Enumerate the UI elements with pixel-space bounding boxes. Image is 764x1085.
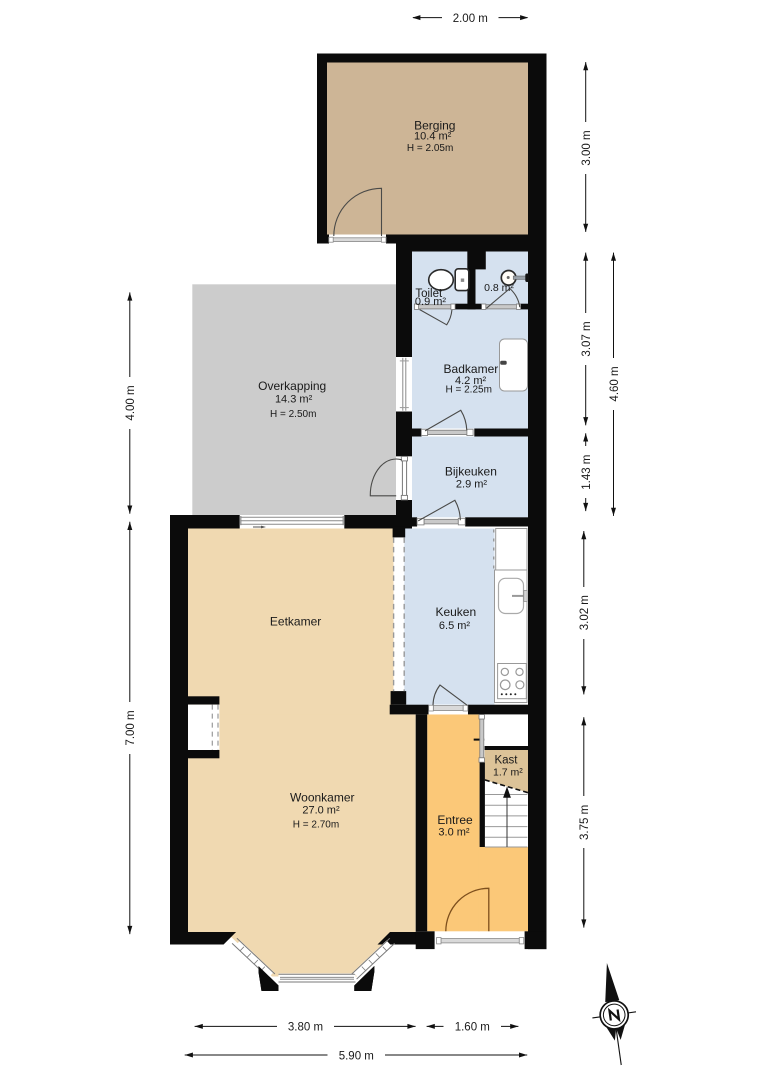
svg-text:Eetkamer: Eetkamer <box>270 615 321 629</box>
svg-text:3.07 m: 3.07 m <box>581 321 593 356</box>
svg-text:10.4 m²: 10.4 m² <box>414 130 452 142</box>
svg-text:6.5 m²: 6.5 m² <box>439 620 471 632</box>
svg-text:H = 2.70m: H = 2.70m <box>293 820 339 831</box>
svg-text:3.00 m: 3.00 m <box>581 130 593 165</box>
svg-text:Keuken: Keuken <box>435 605 476 619</box>
svg-text:Entree: Entree <box>437 813 473 827</box>
svg-text:27.0 m²: 27.0 m² <box>302 805 340 817</box>
svg-text:5.90 m: 5.90 m <box>339 1050 374 1062</box>
svg-text:Overkapping: Overkapping <box>258 379 326 393</box>
svg-text:0.8 m²: 0.8 m² <box>484 282 514 294</box>
svg-text:2.9 m²: 2.9 m² <box>456 479 488 491</box>
svg-text:3.75 m: 3.75 m <box>579 805 591 840</box>
svg-text:1.43 m: 1.43 m <box>581 455 593 490</box>
svg-text:H = 2.25m: H = 2.25m <box>445 384 491 395</box>
svg-text:Woonkamer: Woonkamer <box>290 791 354 805</box>
svg-text:4.60 m: 4.60 m <box>609 366 621 401</box>
svg-text:1.60 m: 1.60 m <box>455 1022 490 1034</box>
svg-text:14.3 m²: 14.3 m² <box>275 394 313 406</box>
svg-text:Bijkeuken: Bijkeuken <box>445 464 497 478</box>
svg-text:3.0 m²: 3.0 m² <box>438 827 470 839</box>
svg-text:0.9 m²: 0.9 m² <box>415 296 447 308</box>
svg-text:H = 2.50m: H = 2.50m <box>270 409 316 420</box>
svg-text:7.00 m: 7.00 m <box>125 710 137 745</box>
svg-text:1.7 m²: 1.7 m² <box>493 766 523 778</box>
svg-text:3.80 m: 3.80 m <box>288 1022 323 1034</box>
svg-text:4.00 m: 4.00 m <box>125 385 137 420</box>
svg-text:3.02 m: 3.02 m <box>579 595 591 630</box>
svg-text:Badkamer: Badkamer <box>444 362 499 376</box>
svg-text:Kast: Kast <box>494 754 518 766</box>
svg-text:H = 2.05m: H = 2.05m <box>407 143 453 154</box>
svg-text:2.00 m: 2.00 m <box>453 13 488 25</box>
